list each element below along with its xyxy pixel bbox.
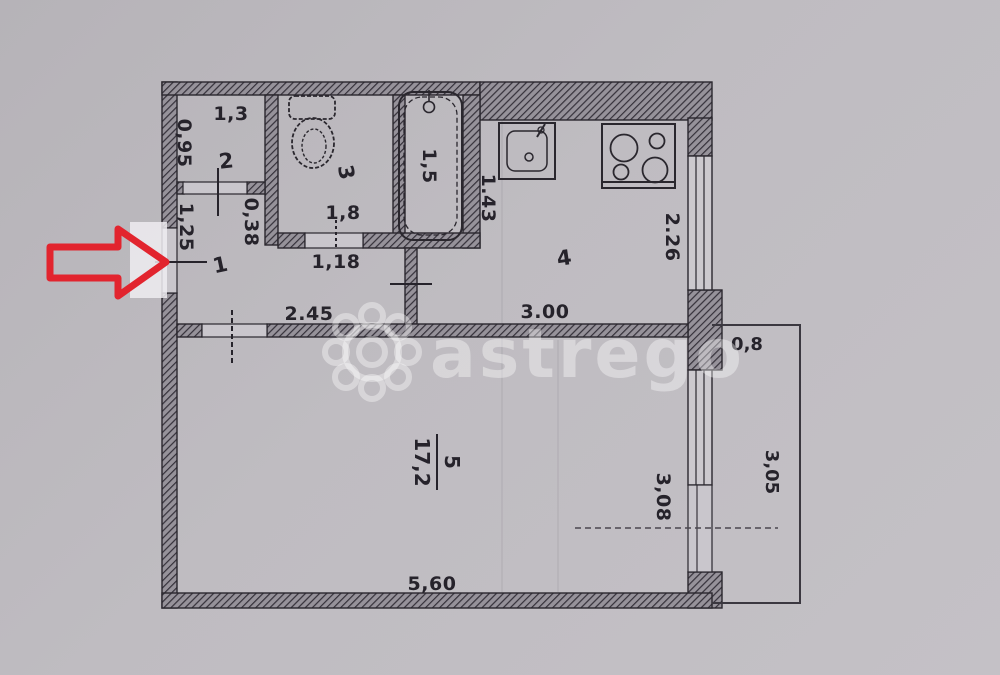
room5-number: 5 (440, 455, 464, 469)
room5-area-label: 5 17,2 (410, 434, 464, 490)
room1-number: 1 (211, 252, 230, 279)
dim-balcony-length: 3,05 (761, 450, 782, 494)
dim-room5-width: 5,60 (408, 573, 457, 595)
wall-outer-left-lower (162, 293, 177, 608)
dim-bathtub: 1,5 (418, 148, 440, 183)
wall-hall-kitchen-divider (405, 248, 417, 324)
watermark-gear-icon (325, 305, 419, 399)
dim-entrance-door: 1,25 (175, 203, 197, 252)
dim-kitchen-left: 1.43 (477, 174, 499, 223)
dim-room5-window: 3,08 (652, 473, 674, 522)
wall-outer-top (162, 82, 480, 95)
room2-number: 2 (218, 148, 235, 173)
watermark-text: astrego (430, 315, 745, 394)
wall-room2-room3-divider (265, 95, 278, 245)
dim-room3-door: 1,18 (312, 251, 361, 273)
wall-bath-kitchen-divider (463, 95, 480, 248)
wall-hall-room5-left (177, 324, 202, 337)
room2-door-opening (183, 182, 247, 194)
toilet-icon (289, 96, 335, 168)
wall-room2-bottom-right (247, 182, 265, 194)
dim-kitchen-right: 2.26 (661, 213, 683, 262)
dim-room3-width: 1,8 (325, 202, 360, 224)
room3-number: 3 (333, 163, 359, 182)
floor-plan-drawing: 1,3 0,95 2 1,25 1 0,38 3 1,8 1,18 1,5 1.… (0, 0, 1000, 675)
wall-room3-bottom-left (278, 233, 305, 248)
dim-room2-width: 1,3 (213, 103, 248, 125)
room4-number: 4 (555, 245, 573, 271)
wall-right-corner-upper (688, 118, 712, 156)
wall-outer-top-kitchen (480, 82, 712, 120)
dim-room2-offset: 0,38 (240, 198, 262, 247)
dim-hall-width: 2.45 (285, 303, 334, 325)
room5-area: 17,2 (410, 437, 434, 486)
stove-icon (602, 124, 675, 188)
kitchen-window (688, 156, 712, 290)
dim-room2-depth: 0,95 (173, 119, 195, 168)
sink-icon (499, 123, 555, 179)
room3-door-opening (305, 233, 363, 248)
wall-outer-bottom (162, 593, 712, 608)
floor-plan-photo: 1,3 0,95 2 1,25 1 0,38 3 1,8 1,18 1,5 1.… (0, 0, 1000, 675)
hall-room5-door-opening (202, 324, 267, 337)
watermark: astrego (325, 305, 745, 399)
